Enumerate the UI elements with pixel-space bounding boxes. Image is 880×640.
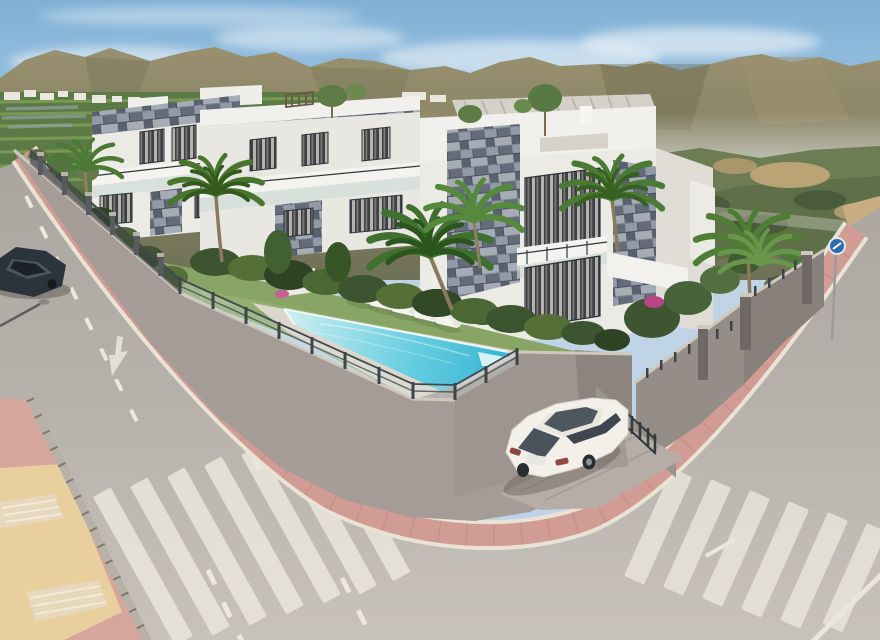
- property-render: photorealistic CGI visualization: [0, 0, 880, 640]
- render-illustration: photorealistic CGI visualization: [0, 0, 880, 640]
